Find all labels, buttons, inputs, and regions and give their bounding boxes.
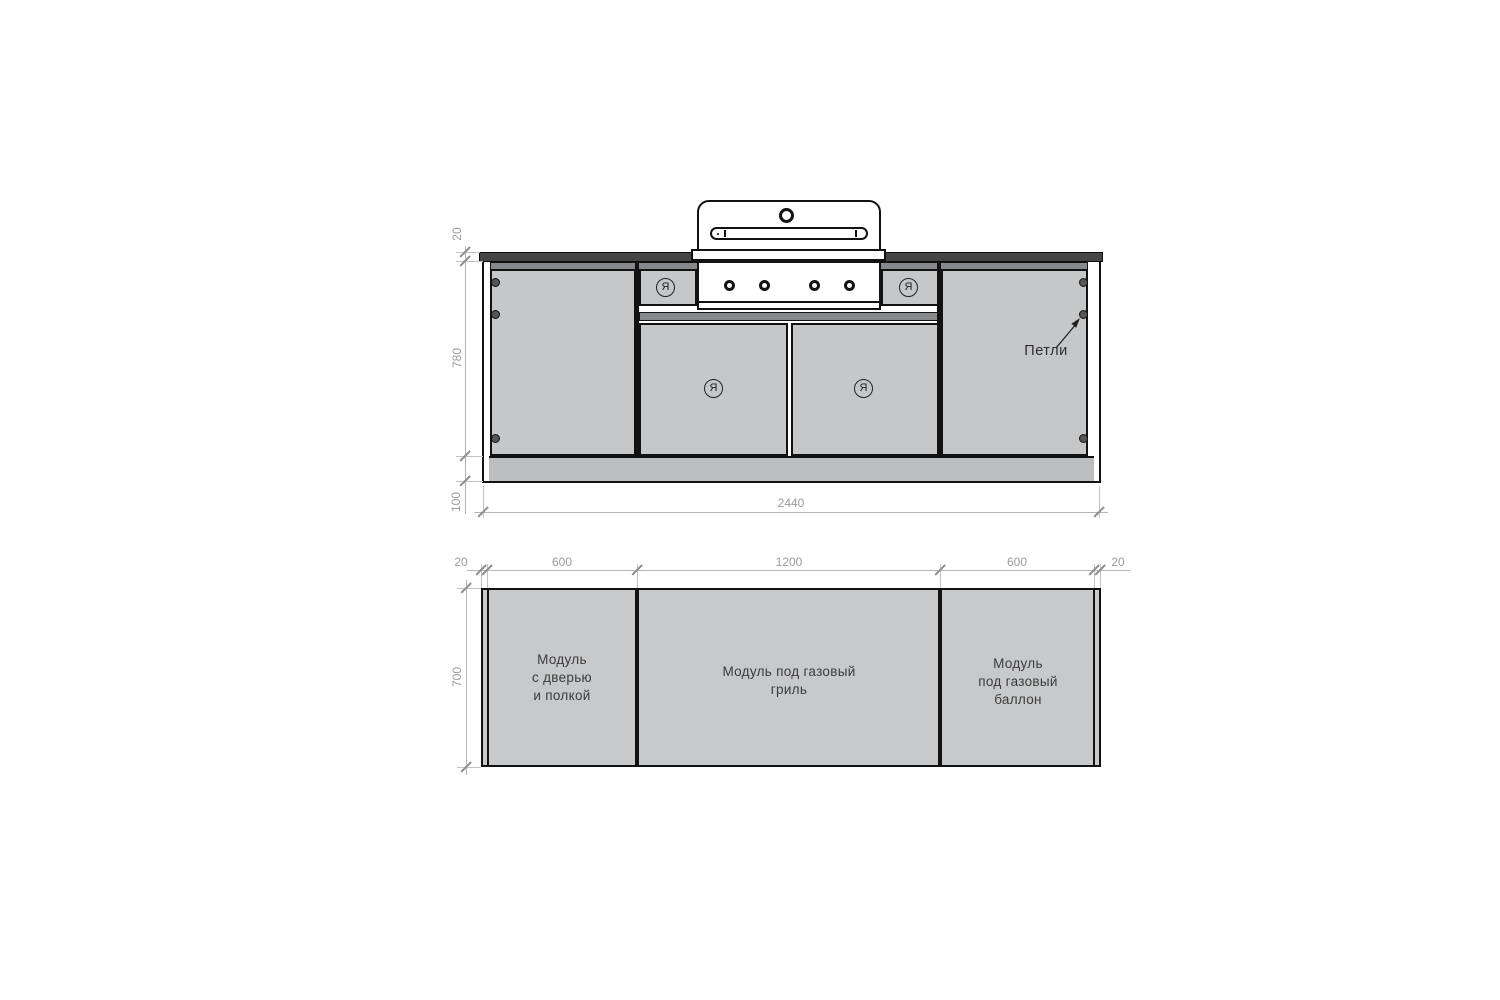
door-symbol-text: Я <box>662 282 670 293</box>
plinth <box>489 456 1094 481</box>
module-label-line: гриль <box>639 681 939 699</box>
door-symbol-text: Я <box>860 383 868 394</box>
shelf-rail <box>639 312 941 321</box>
dim-countertop-thickness: 20 <box>450 219 464 249</box>
hinge-dot <box>1079 278 1088 287</box>
door-symbol: Я <box>899 278 918 297</box>
dim-plinth-height: 100 <box>449 482 463 522</box>
module-label-line: Модуль <box>489 651 635 669</box>
module-divider-left <box>635 261 639 457</box>
front-dim-line-width <box>474 512 1108 513</box>
plan-dim-line-horizontal <box>467 570 1130 571</box>
door-symbol: Я <box>656 278 675 297</box>
module-label-line: Модуль под газовый <box>639 663 939 681</box>
door-symbol: Я <box>704 379 723 398</box>
grill-control-panel <box>697 261 881 310</box>
hinge-dot <box>1079 434 1088 443</box>
grill-thermometer-icon <box>779 208 794 223</box>
module-label-line: с дверью <box>489 669 635 687</box>
module-label-gas-grill: Модуль под газовый гриль <box>639 663 939 699</box>
grill-knob <box>809 280 820 291</box>
control-panel-groove <box>699 301 879 303</box>
hinge-dot <box>491 434 500 443</box>
door-symbol-text: Я <box>710 383 718 394</box>
grill-flange <box>691 249 886 261</box>
extension-line <box>1099 486 1100 518</box>
front-elevation-view: Я Я Я Я Петли 20 780 100 2440 <box>0 0 1500 560</box>
module-divider-right <box>937 261 941 457</box>
dim-right-side-panel: 20 <box>1103 555 1133 569</box>
module-label-line: под газовый <box>942 673 1094 691</box>
module-label-line: и полкой <box>489 687 635 705</box>
dim-left-module: 600 <box>532 555 592 569</box>
grill-knob <box>724 280 735 291</box>
hinge-dot <box>491 278 500 287</box>
hinge-callout-arrow <box>1050 310 1088 352</box>
dim-left-side-panel: 20 <box>446 555 476 569</box>
dim-body-height: 780 <box>450 338 464 378</box>
door-symbol-text: Я <box>905 282 913 293</box>
module-label-line: Модуль <box>942 655 1094 673</box>
dim-right-module: 600 <box>987 555 1047 569</box>
handle-end-right <box>855 230 857 237</box>
handle-pin <box>717 233 719 235</box>
dim-depth: 700 <box>450 657 464 697</box>
plan-view: Модуль с дверью и полкой Модуль под газо… <box>0 540 1500 800</box>
right-door-panel <box>941 269 1088 456</box>
dim-center-module: 1200 <box>749 555 829 569</box>
extension-line <box>457 588 481 589</box>
module-label-line: баллон <box>942 691 1094 709</box>
extension-line <box>456 261 483 262</box>
grill-knob <box>844 280 855 291</box>
module-label-gas-cylinder: Модуль под газовый баллон <box>942 655 1094 709</box>
grill-knob <box>759 280 770 291</box>
extension-line <box>456 456 483 457</box>
technical-drawing-canvas: Я Я Я Я Петли 20 780 100 2440 <box>0 0 1500 1000</box>
door-symbol: Я <box>854 379 873 398</box>
left-door-panel <box>490 269 636 456</box>
extension-line <box>457 767 481 768</box>
dim-total-width: 2440 <box>751 496 831 510</box>
front-dim-line-vertical <box>465 246 466 514</box>
extension-line <box>483 486 484 518</box>
hinge-dot <box>491 310 500 319</box>
grill-handle <box>710 227 868 240</box>
plan-dim-line-depth <box>466 580 467 775</box>
handle-end-left <box>724 230 726 237</box>
extension-line <box>456 252 480 253</box>
module-label-door-shelf: Модуль с дверью и полкой <box>489 651 635 705</box>
